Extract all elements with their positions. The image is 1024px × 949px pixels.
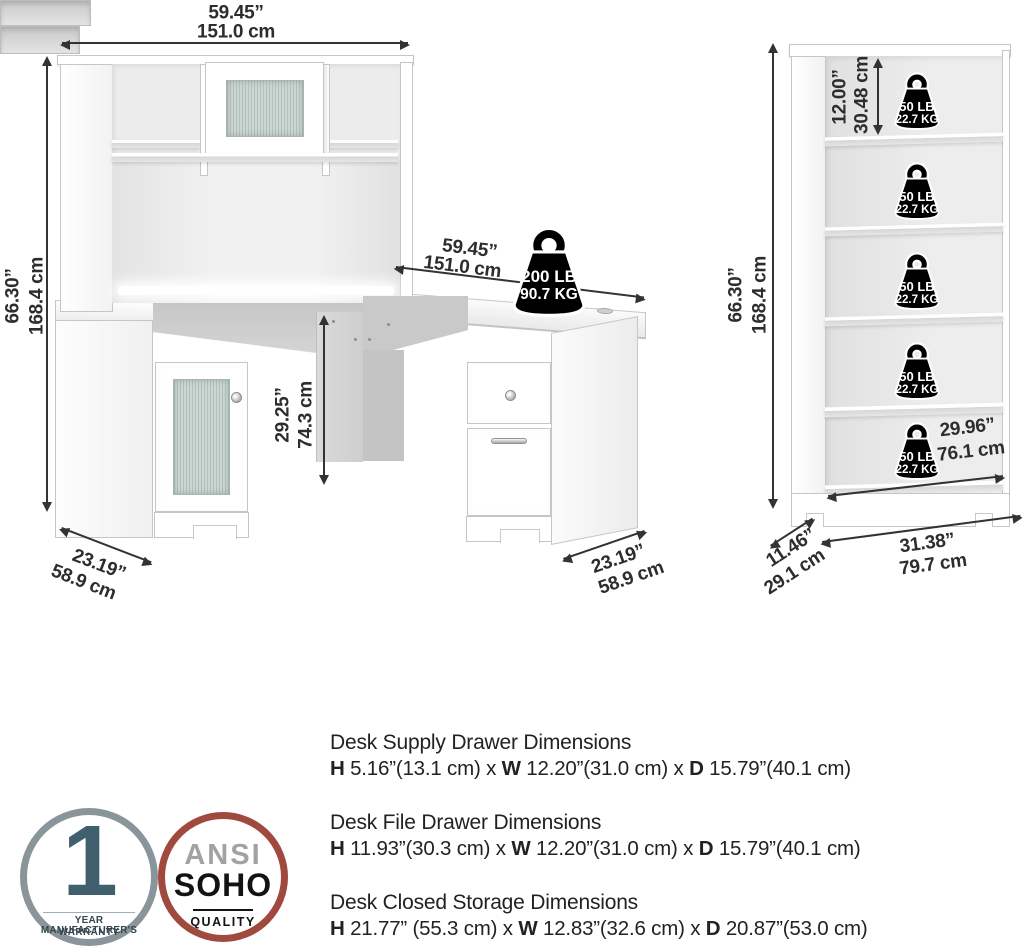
desk-left-base-notch	[193, 525, 237, 539]
h-label: H	[330, 917, 345, 940]
d-value: 20.87”(53.0 cm)	[720, 917, 867, 940]
bookcase-height-inches: 66.30”	[727, 267, 746, 322]
desk-corner-panel-right	[363, 350, 404, 461]
desk-hutch-width-arrow	[62, 42, 408, 44]
hutch-back-panel	[112, 162, 400, 303]
shelf-weight-capacity-icon: 50 LB22.7 KG	[889, 252, 945, 312]
closed-storage-values: H 21.77” (55.3 cm) x W 12.83”(32.6 cm) x…	[330, 917, 868, 941]
desk-knee-height-inches: 29.25”	[274, 387, 293, 442]
d-label: D	[699, 837, 714, 860]
warranty-badge-number: 1	[27, 811, 151, 911]
d-label: D	[689, 757, 704, 780]
bookcase-top-shelf-cm: 30.48 cm	[853, 56, 872, 134]
d-value: 15.79”(40.1 cm)	[704, 757, 851, 780]
hutch-door-glass	[226, 80, 304, 137]
hutch-led-light-strip	[118, 286, 394, 295]
closed-storage-title: Desk Closed Storage Dimensions	[330, 891, 638, 915]
shelf-weight-capacity-icon: 50 LB22.7 KG	[889, 72, 945, 132]
desk-knee-height-cm: 74.3 cm	[297, 381, 316, 449]
w-value: 12.20”(31.0 cm) x	[521, 757, 689, 780]
file-drawer-title: Desk File Drawer Dimensions	[330, 811, 601, 835]
shelf-pin-hole	[332, 320, 335, 323]
warranty-badge-line2: WARRANTY	[27, 928, 151, 938]
h-label: H	[330, 757, 345, 780]
weight-capacity-text: 50 LB22.7 KG	[889, 370, 945, 397]
ansi-badge-line2: SOHO	[165, 869, 281, 901]
cabinet-door-knob	[231, 392, 242, 403]
w-label: W	[518, 917, 537, 940]
desk-right-base-notch	[500, 529, 540, 543]
w-label: W	[511, 837, 530, 860]
hutch-left-side-panel	[60, 64, 113, 312]
desk-height-inches: 66.30”	[4, 268, 23, 323]
supply-drawer-title: Desk Supply Drawer Dimensions	[330, 731, 631, 755]
desk-left-side-panel	[55, 320, 153, 538]
file-drawer-handle	[491, 438, 527, 444]
desk-left-open-cubby	[0, 0, 91, 26]
d-value: 15.79”(40.1 cm)	[713, 837, 860, 860]
ansi-badge-divider	[193, 909, 253, 911]
ansi-badge-line3: QUALITY	[165, 916, 281, 929]
supply-drawer-knob	[505, 390, 516, 401]
bookcase-height-cm: 168.4 cm	[751, 256, 770, 334]
weight-capacity-text: 200 LB 90.7 KG	[504, 267, 594, 303]
w-label: W	[502, 757, 521, 780]
hutch-center-shelf	[112, 153, 398, 162]
ansi-badge-line1: ANSI	[165, 841, 281, 870]
desk-height-cm: 168.4 cm	[28, 257, 47, 335]
weight-capacity-text: 50 LB22.7 KG	[889, 280, 945, 307]
shelf-pin-hole	[354, 338, 357, 341]
desk-knee-height-arrow	[323, 317, 325, 483]
desk-hutch-width-cm: 151.0 cm	[197, 23, 275, 42]
bookcase-top-shelf-inches: 12.00”	[831, 69, 850, 124]
desk-right-side-panel	[551, 316, 638, 545]
supply-drawer-values: H 5.16”(13.1 cm) x W 12.20”(31.0 cm) x D…	[330, 757, 851, 781]
weight-capacity-text: 50 LB22.7 KG	[889, 190, 945, 217]
shelf-pin-hole	[368, 338, 371, 341]
warranty-badge: 1 YEAR MANUFACTURER'S WARRANTY	[20, 808, 158, 946]
bookcase-left-side-panel	[791, 56, 826, 522]
bookcase-height-arrow	[772, 45, 774, 507]
h-value: 21.77” (55.3 cm) x	[345, 917, 519, 940]
desk-hutch-width-inches: 59.45”	[208, 4, 263, 23]
w-value: 12.83”(32.6 cm) x	[538, 917, 706, 940]
bookcase-top-shelf-arrow	[877, 60, 879, 133]
hutch-left-cubby-shelf	[112, 140, 200, 148]
w-value: 12.20”(31.0 cm) x	[530, 837, 698, 860]
shelf-pin-hole	[387, 323, 390, 326]
hutch-right-cubby-shelf	[324, 140, 398, 148]
desk-underside-right	[363, 296, 468, 358]
file-drawer-values: H 11.93”(30.3 cm) x W 12.20”(31.0 cm) x …	[330, 837, 861, 861]
h-label: H	[330, 837, 345, 860]
desk-height-arrow	[46, 58, 48, 510]
shelf-weight-capacity-icon: 50 LB22.7 KG	[889, 162, 945, 222]
h-value: 11.93”(30.3 cm) x	[345, 837, 512, 860]
cabinet-door-glass	[173, 379, 230, 495]
h-value: 5.16”(13.1 cm) x	[345, 757, 502, 780]
d-label: D	[706, 917, 721, 940]
warranty-badge-divider	[43, 912, 135, 913]
weight-capacity-text: 50 LB22.7 KG	[889, 100, 945, 127]
ansi-soho-quality-badge: ANSI SOHO QUALITY	[158, 812, 288, 942]
shelf-weight-capacity-icon: 50 LB22.7 KG	[889, 342, 945, 402]
desk-weight-capacity-icon: 200 LB 90.7 KG	[504, 226, 594, 320]
product-dimension-diagram: 59.45” 151.0 cm 66.30” 168.4 cm	[0, 0, 1024, 949]
